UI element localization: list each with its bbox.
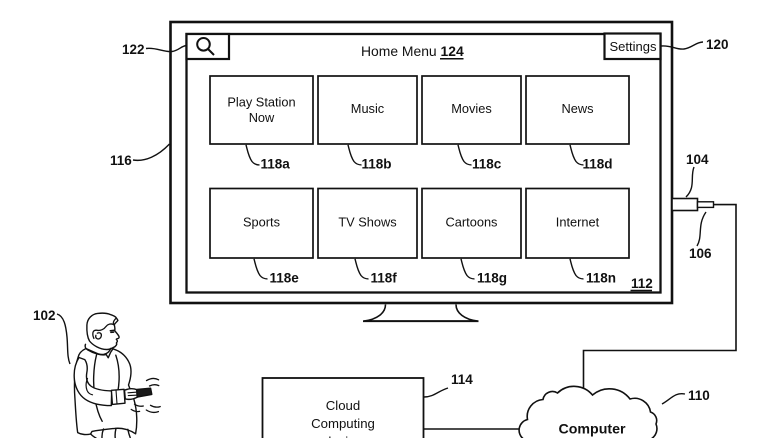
svg-text:118g: 118g: [477, 271, 507, 286]
svg-text:Play Station: Play Station: [227, 95, 295, 110]
svg-text:118b: 118b: [362, 157, 392, 172]
svg-text:Sports: Sports: [243, 215, 280, 230]
svg-text:104: 104: [686, 152, 709, 167]
svg-text:Home Menu 124: Home Menu 124: [361, 43, 464, 59]
svg-text:118f: 118f: [371, 271, 398, 286]
svg-text:106: 106: [689, 246, 712, 261]
svg-text:News: News: [562, 101, 594, 116]
svg-text:Settings: Settings: [610, 39, 657, 54]
svg-text:118c: 118c: [472, 157, 502, 172]
svg-text:Computing: Computing: [311, 416, 375, 431]
svg-text:Cloud: Cloud: [326, 398, 360, 413]
svg-text:102: 102: [33, 308, 56, 323]
svg-text:118a: 118a: [261, 157, 291, 172]
svg-text:Internet: Internet: [556, 215, 600, 230]
svg-text:Computer: Computer: [559, 422, 626, 438]
svg-text:TV Shows: TV Shows: [338, 215, 396, 230]
svg-text:Music: Music: [351, 101, 385, 116]
svg-text:118d: 118d: [583, 157, 613, 172]
svg-text:118e: 118e: [270, 271, 300, 286]
svg-text:device: device: [324, 434, 362, 438]
svg-text:114: 114: [451, 372, 473, 387]
svg-text:110: 110: [688, 388, 710, 403]
svg-text:Now: Now: [249, 110, 275, 125]
svg-text:116: 116: [110, 153, 132, 168]
svg-text:120: 120: [706, 37, 729, 52]
svg-text:118n: 118n: [586, 271, 616, 286]
svg-text:112: 112: [631, 276, 653, 291]
svg-text:Cartoons: Cartoons: [446, 215, 498, 230]
svg-text:122: 122: [122, 42, 145, 57]
svg-text:Movies: Movies: [451, 101, 492, 116]
